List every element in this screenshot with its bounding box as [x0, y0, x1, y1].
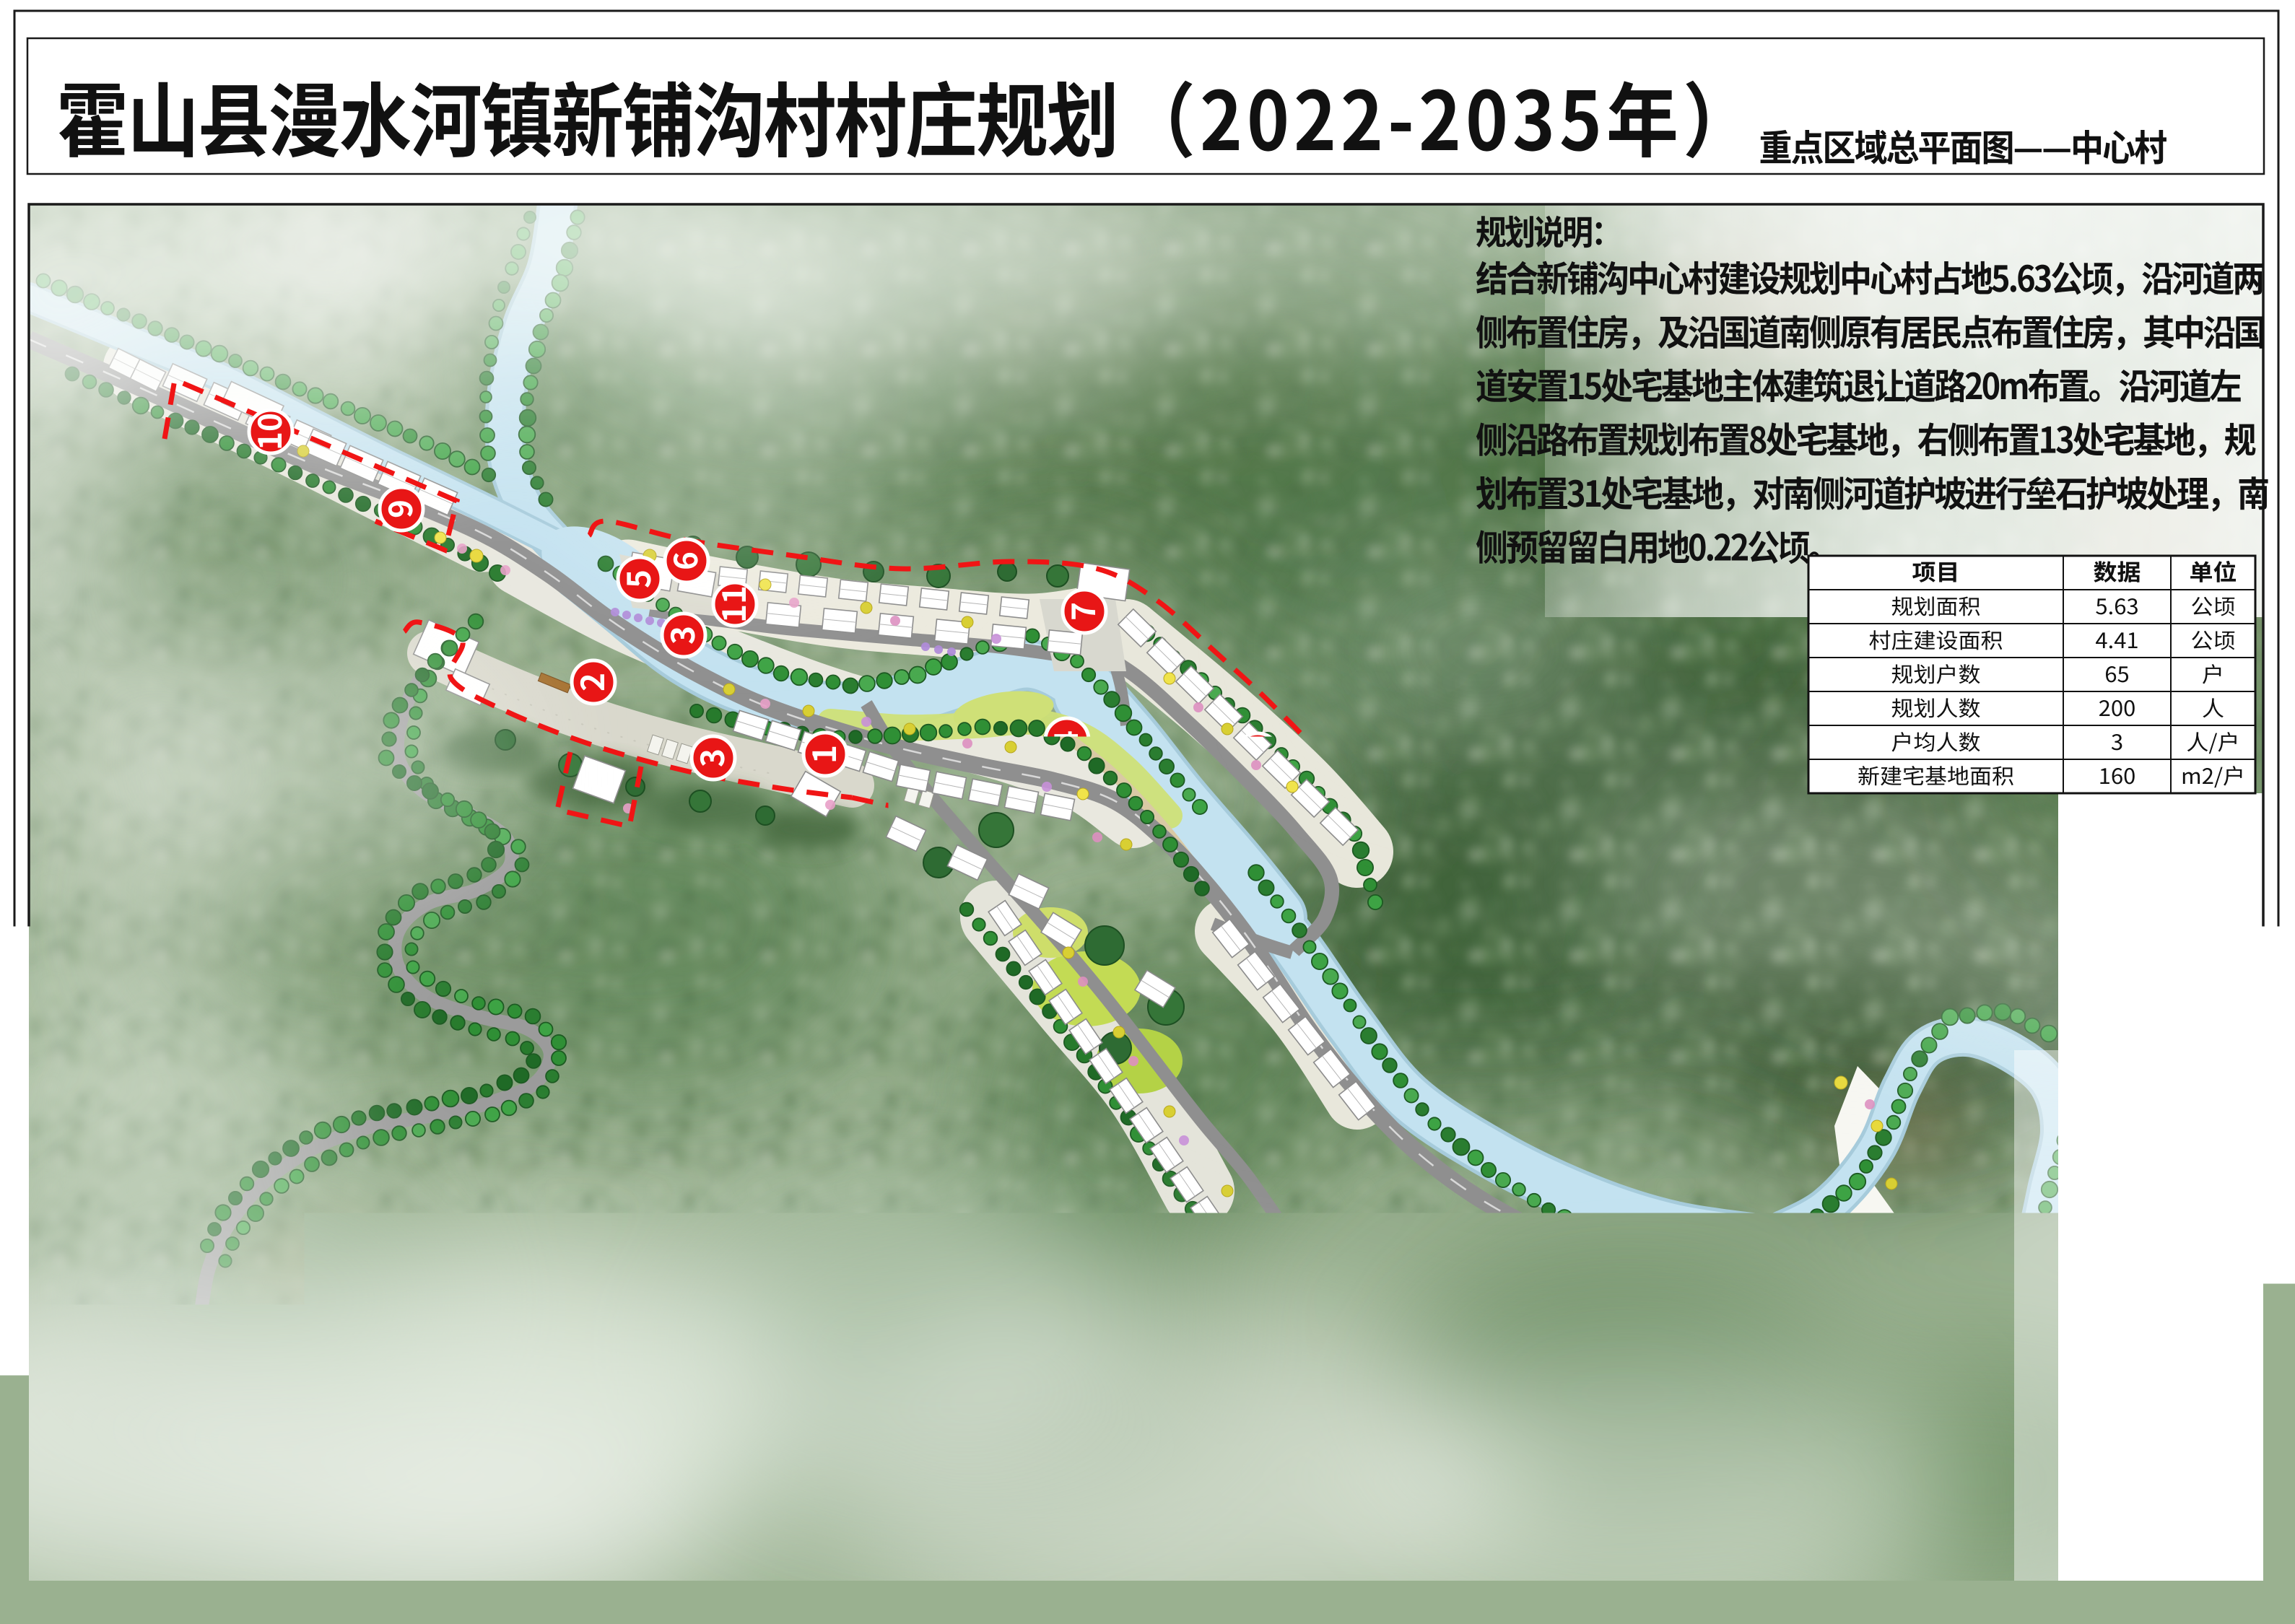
svg-text:N: N [37, 1446, 95, 1483]
